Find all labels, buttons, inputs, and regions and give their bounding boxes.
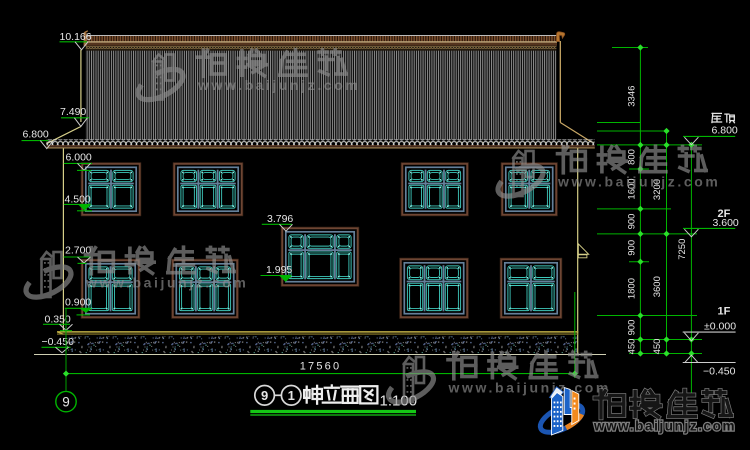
svg-text:3.796: 3.796 xyxy=(267,213,293,225)
svg-text:0.350: 0.350 xyxy=(45,313,71,325)
svg-text:3.600: 3.600 xyxy=(713,217,739,229)
svg-text:www.baijunjz.com: www.baijunjz.com xyxy=(593,419,736,434)
svg-text:9: 9 xyxy=(261,388,268,403)
svg-text:450: 450 xyxy=(627,339,638,355)
svg-text:900: 900 xyxy=(627,240,638,256)
svg-text:www.baijunjz.com: www.baijunjz.com xyxy=(197,77,360,93)
svg-text:4.500: 4.500 xyxy=(65,193,91,205)
svg-text:www.baijunjz.com: www.baijunjz.com xyxy=(557,174,720,190)
svg-text:6.000: 6.000 xyxy=(66,151,92,163)
svg-text:7250: 7250 xyxy=(677,239,688,260)
svg-text:800: 800 xyxy=(627,149,638,165)
svg-text:1.995: 1.995 xyxy=(266,264,292,276)
svg-text:www.baijunjz.com: www.baijunjz.com xyxy=(85,275,248,291)
svg-text:900: 900 xyxy=(627,214,638,230)
svg-text:1F: 1F xyxy=(718,306,731,318)
svg-text:3346: 3346 xyxy=(627,86,638,107)
svg-text:−0.450: −0.450 xyxy=(42,336,75,348)
svg-text:0.900: 0.900 xyxy=(65,297,91,309)
svg-text:1800: 1800 xyxy=(627,278,638,299)
svg-text:6.800: 6.800 xyxy=(712,125,738,137)
svg-text:6.800: 6.800 xyxy=(23,128,49,140)
svg-text:450: 450 xyxy=(652,339,663,355)
svg-text:www.baijunjz.com: www.baijunjz.com xyxy=(448,380,611,396)
svg-text:7.490: 7.490 xyxy=(60,106,86,118)
svg-text:3600: 3600 xyxy=(652,276,663,297)
svg-text:±0.000: ±0.000 xyxy=(704,321,736,333)
svg-text:9: 9 xyxy=(62,394,70,409)
svg-text:17560: 17560 xyxy=(300,360,342,372)
svg-text:10.166: 10.166 xyxy=(60,31,92,43)
svg-text:900: 900 xyxy=(627,320,638,336)
svg-text:−0.450: −0.450 xyxy=(703,366,736,378)
svg-text:1: 1 xyxy=(288,388,295,403)
